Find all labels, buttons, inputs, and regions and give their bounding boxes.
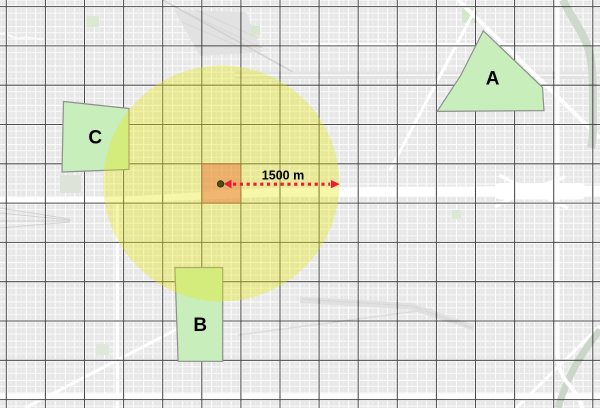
svg-text:A: A <box>486 69 500 90</box>
svg-text:C: C <box>88 128 102 149</box>
svg-text:B: B <box>193 315 207 336</box>
svg-text:1500 m: 1500 m <box>262 169 304 183</box>
